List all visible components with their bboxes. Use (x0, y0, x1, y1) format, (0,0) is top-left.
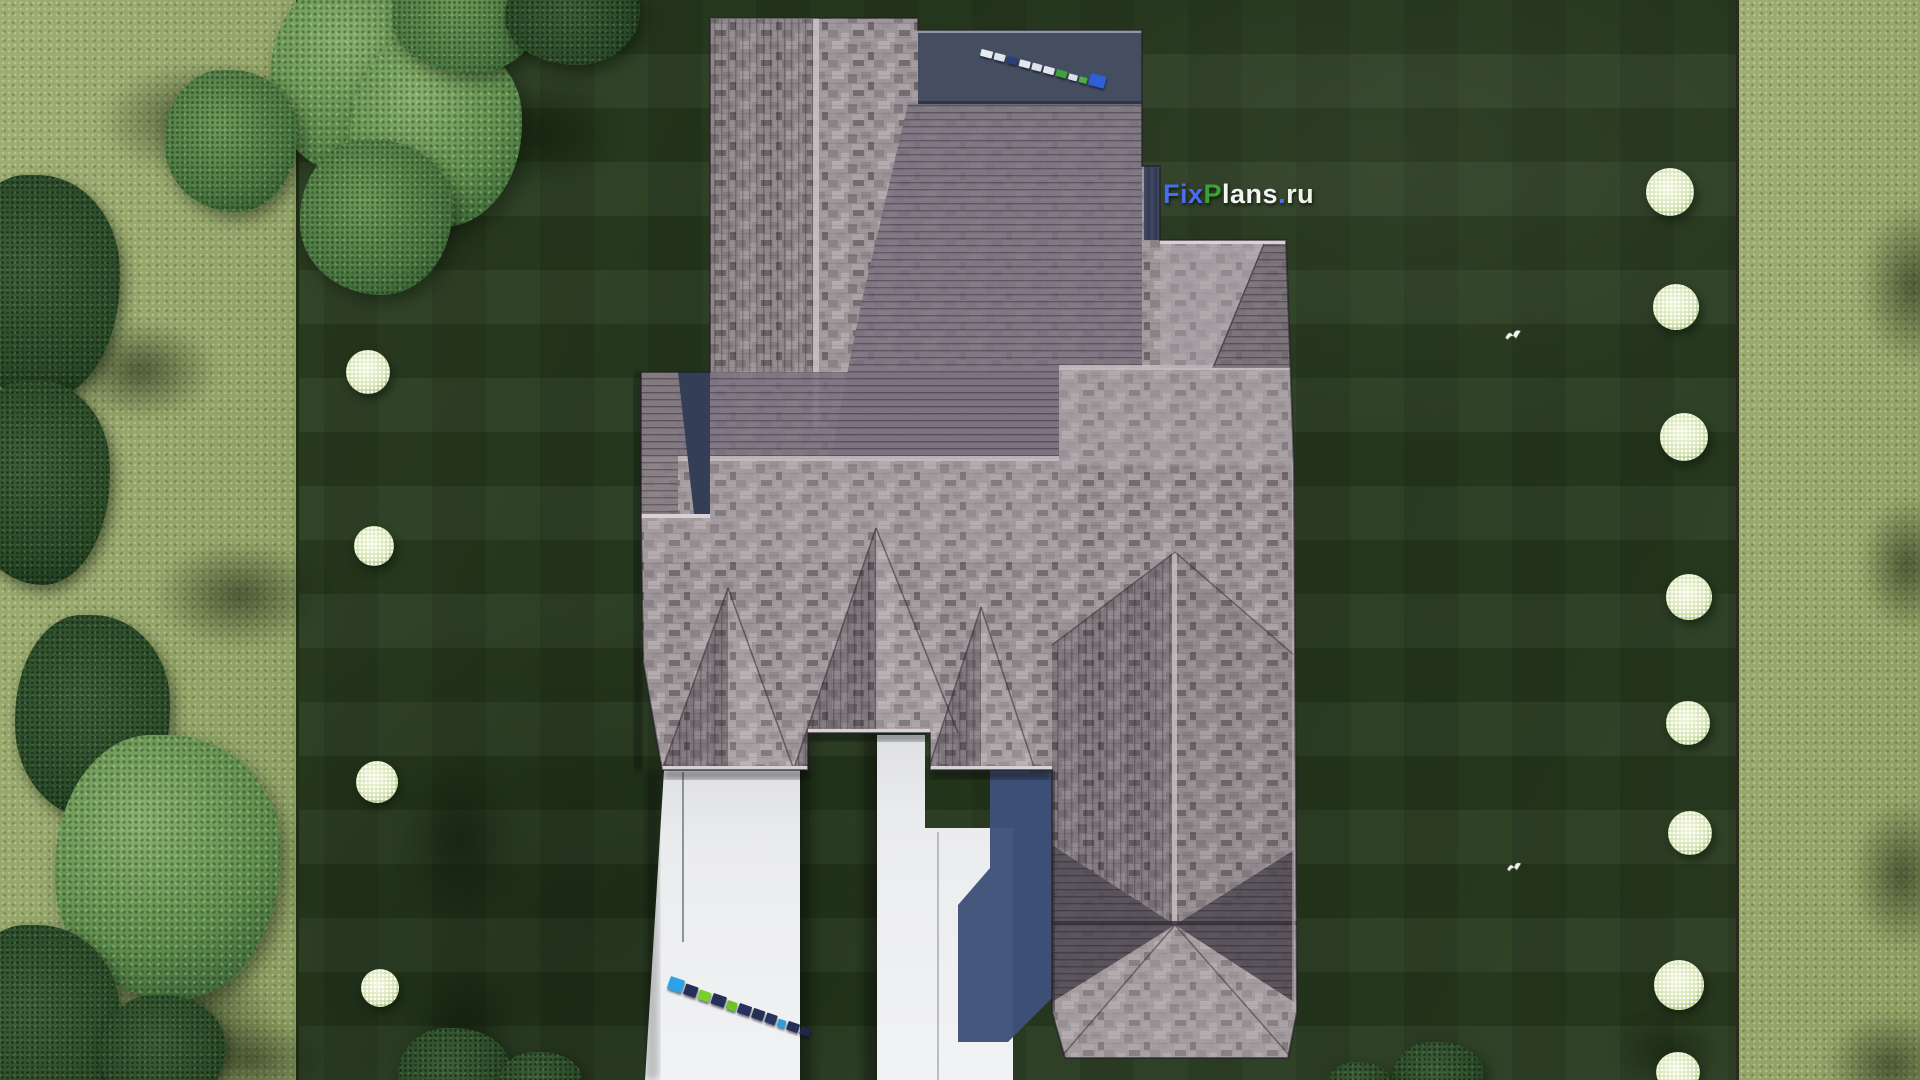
house-roof-render (0, 0, 1920, 1080)
watermark-segment: lans (1222, 179, 1278, 209)
west-wing-texture (641, 372, 678, 518)
house-ground-shadow (958, 737, 1052, 1042)
roof-west-slope-texture (710, 18, 814, 372)
eave-shadow (808, 733, 930, 741)
porch-eave-line (1052, 921, 1297, 925)
watermark-segment: ru (1286, 179, 1314, 209)
driveway (645, 733, 1013, 1080)
white-bird (1504, 858, 1526, 876)
driveway-edge-shade (645, 770, 659, 1080)
roof-ridge-vertical (813, 16, 819, 430)
watermark-segment: P (1204, 179, 1223, 209)
white-bird (1502, 325, 1526, 345)
driveway-left-strip (645, 770, 800, 1080)
watermark-segment: . (1278, 179, 1286, 209)
eave-shadow (662, 770, 808, 779)
west-wing-fascia (641, 514, 710, 518)
fixplans-watermark: FixPlans.ru (1163, 179, 1314, 210)
aerial-scene: FixPlans.ru (0, 0, 1920, 1080)
eave-shadow (930, 770, 1052, 779)
hip-ridge (1172, 552, 1177, 925)
watermark-segment: Fix (1163, 179, 1204, 209)
roof-east-south-slope (1059, 370, 1294, 466)
